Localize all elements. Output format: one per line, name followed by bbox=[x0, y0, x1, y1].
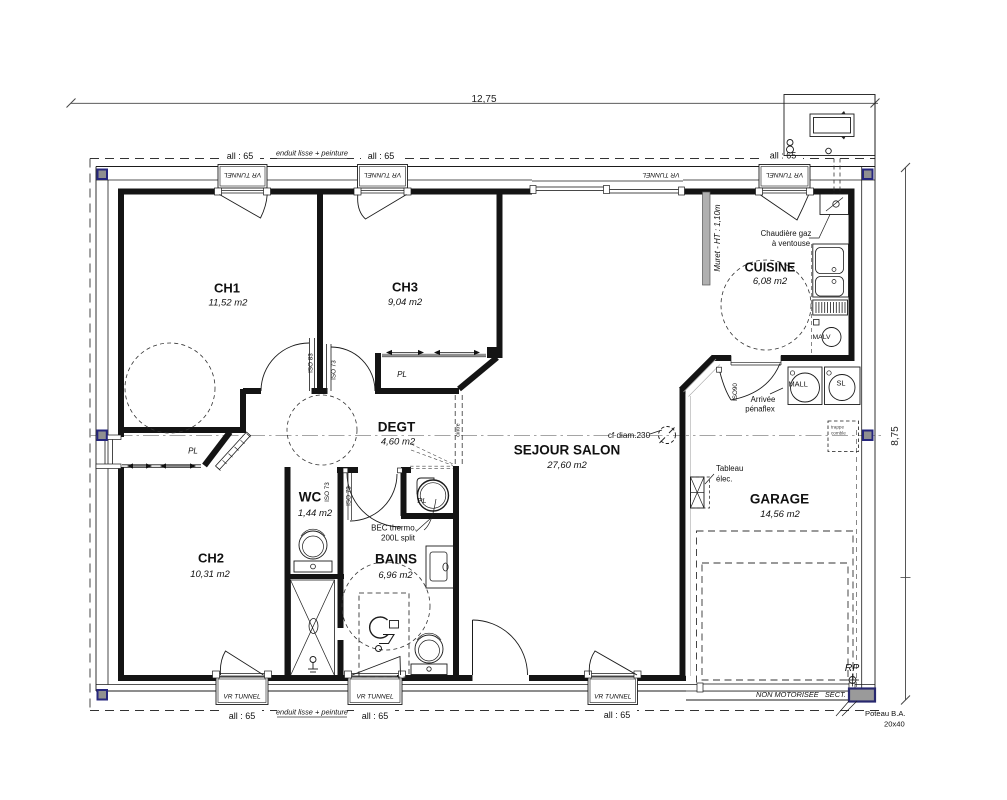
svg-text:10,31 m2: 10,31 m2 bbox=[190, 569, 230, 580]
svg-text:VR TUNNEL: VR TUNNEL bbox=[223, 694, 261, 701]
svg-text:SL: SL bbox=[837, 379, 846, 388]
svg-text:à ventouse: à ventouse bbox=[772, 239, 810, 248]
svg-text:cintre: cintre bbox=[456, 423, 462, 436]
svg-text:all : 65: all : 65 bbox=[368, 151, 395, 161]
svg-text:6,08 m2: 6,08 m2 bbox=[753, 276, 788, 287]
svg-text:Muret - HT : 1,10m: Muret - HT : 1,10m bbox=[713, 204, 722, 271]
svg-text:ISO 73: ISO 73 bbox=[346, 486, 353, 506]
svg-text:CUISINE: CUISINE bbox=[745, 261, 796, 275]
svg-text:enduit lisse + peinture: enduit lisse + peinture bbox=[276, 149, 348, 158]
svg-text:VR TUNNEL: VR TUNNEL bbox=[642, 171, 680, 178]
svg-text:27,60 m2: 27,60 m2 bbox=[546, 460, 587, 471]
svg-text:MALL: MALL bbox=[789, 380, 808, 389]
svg-text:VR TUNNEL: VR TUNNEL bbox=[356, 694, 394, 701]
svg-text:all : 65: all : 65 bbox=[227, 151, 254, 161]
svg-text:CH1: CH1 bbox=[214, 281, 240, 296]
svg-text:CH2: CH2 bbox=[198, 551, 224, 566]
svg-text:all : 65: all : 65 bbox=[362, 711, 389, 721]
svg-text:VR TUNNEL: VR TUNNEL bbox=[765, 171, 803, 178]
svg-text:Arrivée: Arrivée bbox=[751, 395, 776, 404]
svg-text:PL: PL bbox=[417, 496, 426, 505]
svg-text:SEJOUR SALON: SEJOUR SALON bbox=[514, 443, 621, 458]
svg-text:VR TUNNEL: VR TUNNEL bbox=[594, 694, 632, 701]
svg-text:PL: PL bbox=[397, 370, 407, 379]
svg-text:VR TUNNEL: VR TUNNEL bbox=[363, 171, 401, 178]
svg-text:CH3: CH3 bbox=[392, 280, 418, 295]
svg-text:all : 65: all : 65 bbox=[604, 710, 631, 720]
svg-text:enduit lisse + peinture: enduit lisse + peinture bbox=[276, 708, 348, 717]
svg-text:12,75: 12,75 bbox=[471, 94, 496, 105]
svg-text:NON MOTORISEE SECT.: NON MOTORISEE SECT. bbox=[756, 690, 846, 699]
svg-text:trappe: trappe bbox=[831, 425, 844, 430]
svg-text:all : 65: all : 65 bbox=[229, 711, 256, 721]
svg-text:WC: WC bbox=[299, 490, 322, 505]
svg-text:pénaflex: pénaflex bbox=[745, 405, 775, 414]
svg-text:6,96 m2: 6,96 m2 bbox=[378, 570, 413, 581]
svg-text:DEGT: DEGT bbox=[378, 420, 416, 435]
svg-text:GARAGE: GARAGE bbox=[750, 492, 809, 507]
svg-text:8,75: 8,75 bbox=[890, 426, 901, 446]
svg-text:14,56 m2: 14,56 m2 bbox=[760, 509, 800, 520]
svg-text:cf diam.230: cf diam.230 bbox=[608, 431, 651, 440]
svg-text:RP: RP bbox=[845, 662, 860, 674]
svg-text:Tableau: Tableau bbox=[716, 464, 743, 473]
svg-text:20x40: 20x40 bbox=[884, 720, 905, 729]
svg-text:ISO 83: ISO 83 bbox=[307, 353, 314, 373]
svg-text:BAINS: BAINS bbox=[375, 552, 417, 567]
svg-text:BEC thermo.: BEC thermo. bbox=[371, 524, 417, 533]
svg-text:ISO90: ISO90 bbox=[732, 383, 739, 401]
svg-text:1,44 m2: 1,44 m2 bbox=[298, 508, 333, 519]
svg-text:PL: PL bbox=[188, 447, 198, 456]
svg-text:ISO 73: ISO 73 bbox=[324, 482, 331, 502]
svg-text:comble: comble bbox=[831, 431, 846, 436]
svg-text:VR TUNNEL: VR TUNNEL bbox=[223, 171, 261, 178]
svg-text:Chaudière gaz: Chaudière gaz bbox=[761, 229, 812, 238]
svg-text:MALV: MALV bbox=[813, 334, 831, 341]
svg-text:ISO 73: ISO 73 bbox=[331, 360, 338, 380]
svg-text:4,60 m2: 4,60 m2 bbox=[381, 437, 416, 448]
svg-text:200L split: 200L split bbox=[381, 534, 416, 543]
svg-text:11,52 m2: 11,52 m2 bbox=[209, 298, 249, 309]
svg-text:Poteau B.A.: Poteau B.A. bbox=[865, 709, 906, 718]
svg-text:élec.: élec. bbox=[716, 475, 732, 484]
svg-text:9,04 m2: 9,04 m2 bbox=[388, 297, 423, 308]
